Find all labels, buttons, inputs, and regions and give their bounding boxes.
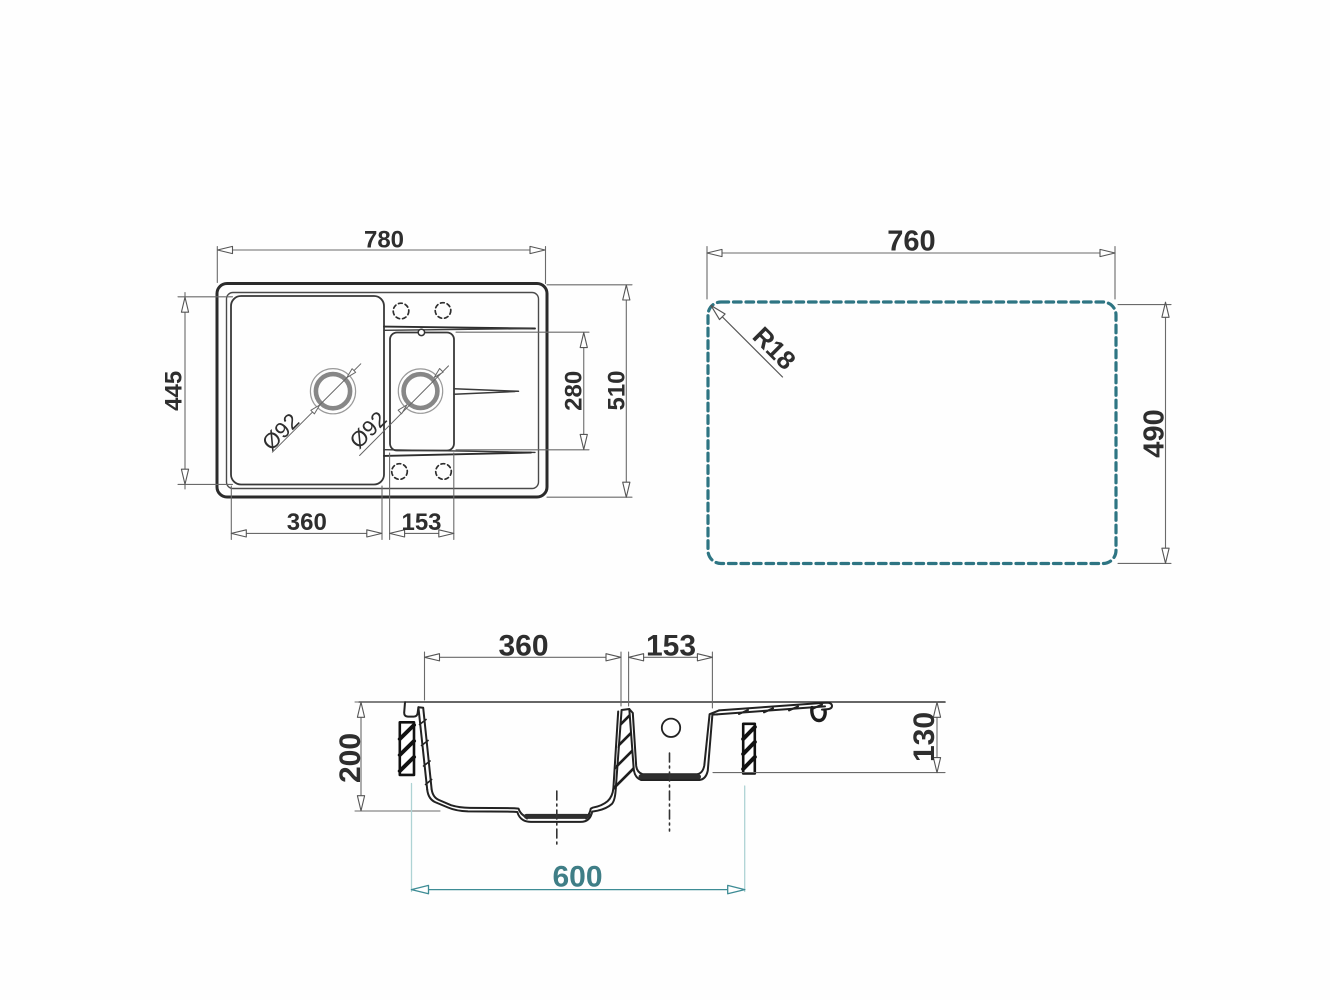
svg-text:153: 153: [646, 630, 696, 663]
svg-text:360: 360: [287, 509, 327, 536]
svg-text:153: 153: [401, 509, 441, 536]
svg-text:280: 280: [561, 371, 588, 411]
svg-text:760: 760: [887, 226, 935, 258]
svg-text:130: 130: [908, 712, 941, 762]
svg-text:490: 490: [1139, 409, 1171, 457]
svg-text:780: 780: [364, 227, 404, 254]
svg-text:600: 600: [552, 861, 602, 894]
svg-text:Ø92: Ø92: [257, 408, 304, 455]
svg-text:200: 200: [334, 733, 367, 783]
svg-text:445: 445: [161, 371, 188, 411]
svg-text:R18: R18: [747, 321, 802, 376]
svg-text:360: 360: [498, 630, 548, 663]
svg-text:510: 510: [604, 370, 631, 410]
